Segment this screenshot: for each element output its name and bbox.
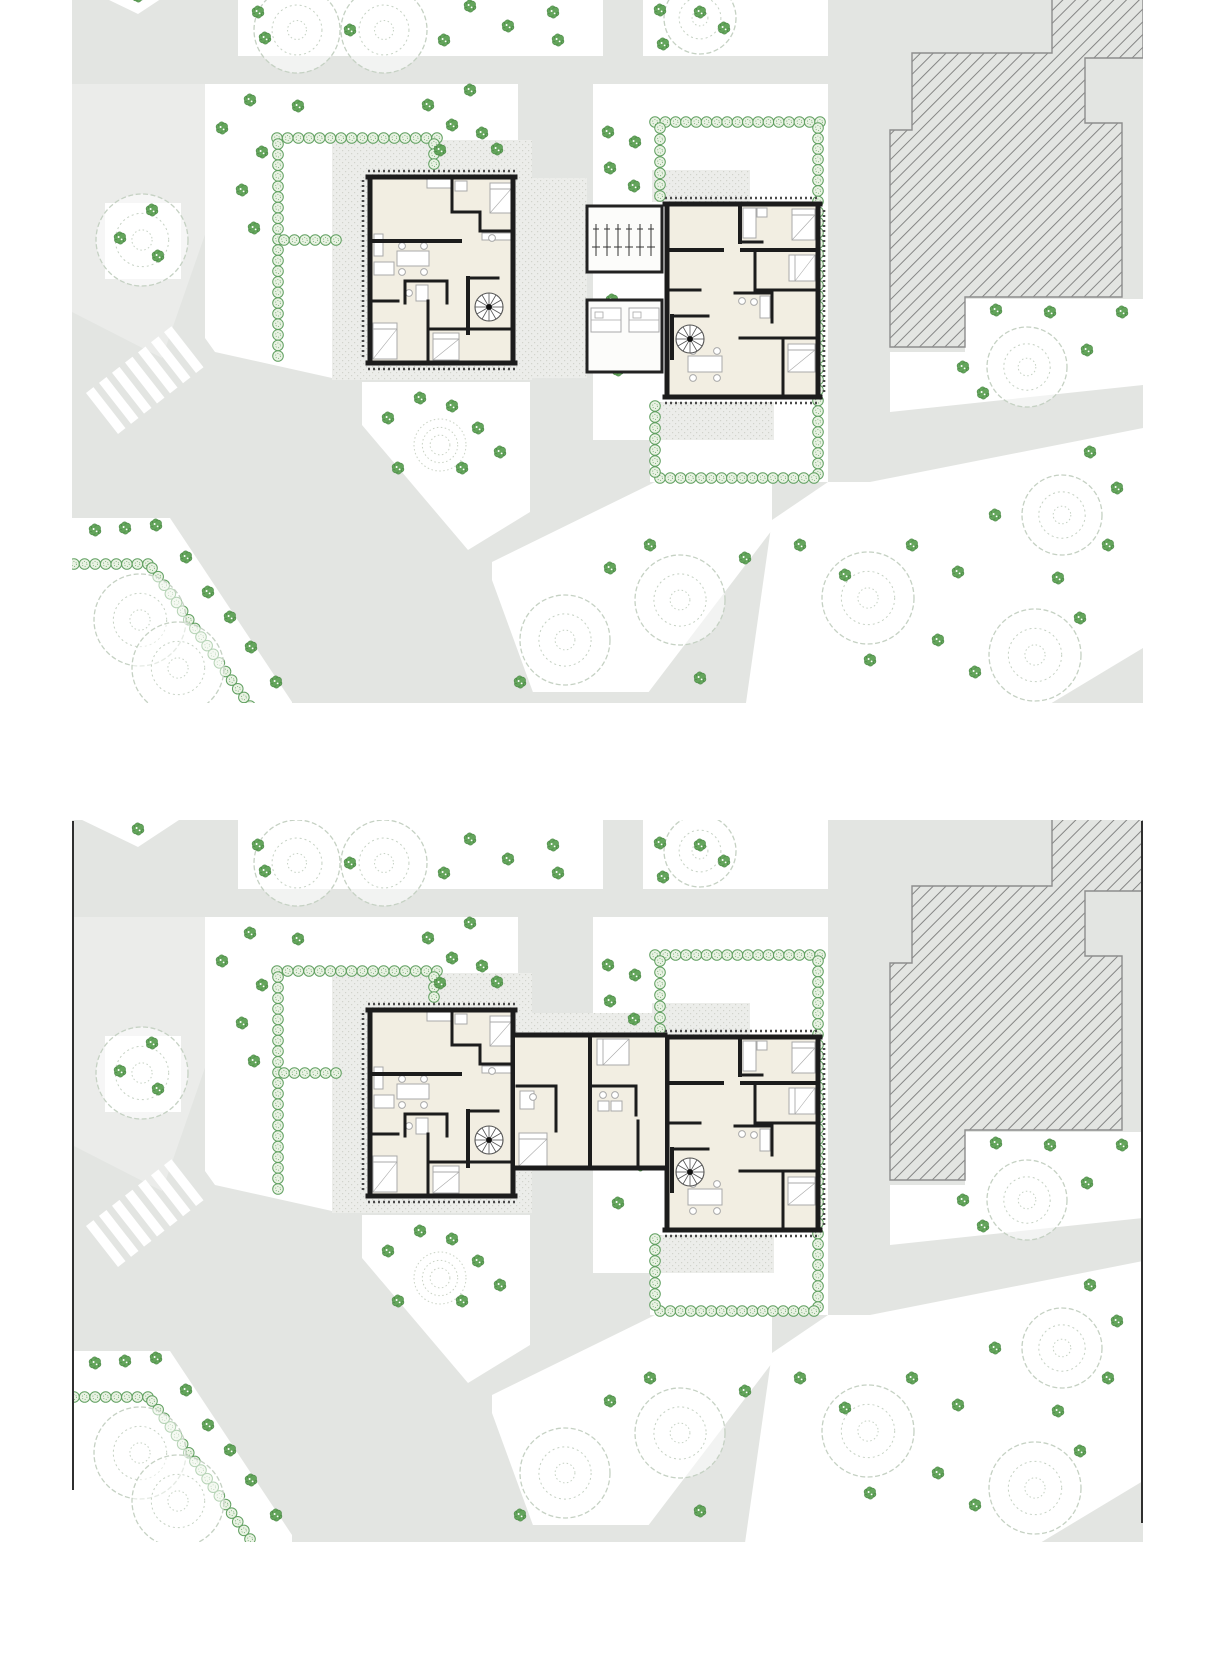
tree-canopy-icon [1022,1308,1102,1388]
site-plan-panel-upper-drawing [72,0,1143,703]
site-plan-panel-upper [72,0,1143,703]
bed-icon [792,209,815,240]
bed-icon [788,344,815,372]
bed-icon [597,1039,629,1065]
tree-canopy-icon [989,1442,1081,1534]
hedge-row [273,972,284,1195]
bed-icon [788,1177,815,1205]
spiral-stair-icon [475,293,503,321]
tree-canopy-icon [96,1027,188,1119]
hedge-row [72,559,153,570]
storage-shed [587,300,662,372]
tree-canopy-icon [822,552,914,644]
tree-canopy-icon [635,1388,725,1478]
tree-canopy-icon [254,820,340,906]
bed-icon [490,1016,511,1046]
bed-icon [373,1156,397,1192]
bed-icon [789,1088,815,1114]
hedge-row [650,950,826,961]
bed-icon [373,323,397,359]
apartment-building-left [368,177,515,363]
bike-shed [587,206,662,272]
apartment-building-right [665,1037,820,1230]
connector-unit [515,1035,665,1168]
tree-canopy-icon [520,595,610,685]
tree-canopy-icon [822,1385,914,1477]
tree-canopy-icon [1022,475,1102,555]
bed-icon [789,255,815,281]
bed-icon [792,1042,815,1073]
tree-canopy-icon [96,194,188,286]
site-plan-page [0,0,1224,1656]
spiral-stair-icon [676,325,704,353]
site-plan-panel-lower [72,820,1143,1542]
bed-icon [490,183,511,213]
spiral-stair-icon [676,1158,704,1186]
hedge-row [273,139,284,362]
tree-canopy-icon [635,555,725,645]
bed-icon [433,1166,459,1193]
bed-icon [519,1133,547,1166]
hedge-row [650,117,826,128]
tree-canopy-icon [520,1428,610,1518]
apartment-building-left [368,1010,515,1196]
apartment-building-right [665,204,820,397]
bed-icon [433,333,459,360]
site-plan-panel-lower-drawing [72,820,1143,1542]
tree-canopy-icon [987,327,1067,407]
tree-canopy-icon [987,1160,1067,1240]
tree-canopy-icon [989,609,1081,701]
hedge-row [72,1392,153,1403]
tree-canopy-icon [132,1455,224,1542]
spiral-stair-icon [475,1126,503,1154]
